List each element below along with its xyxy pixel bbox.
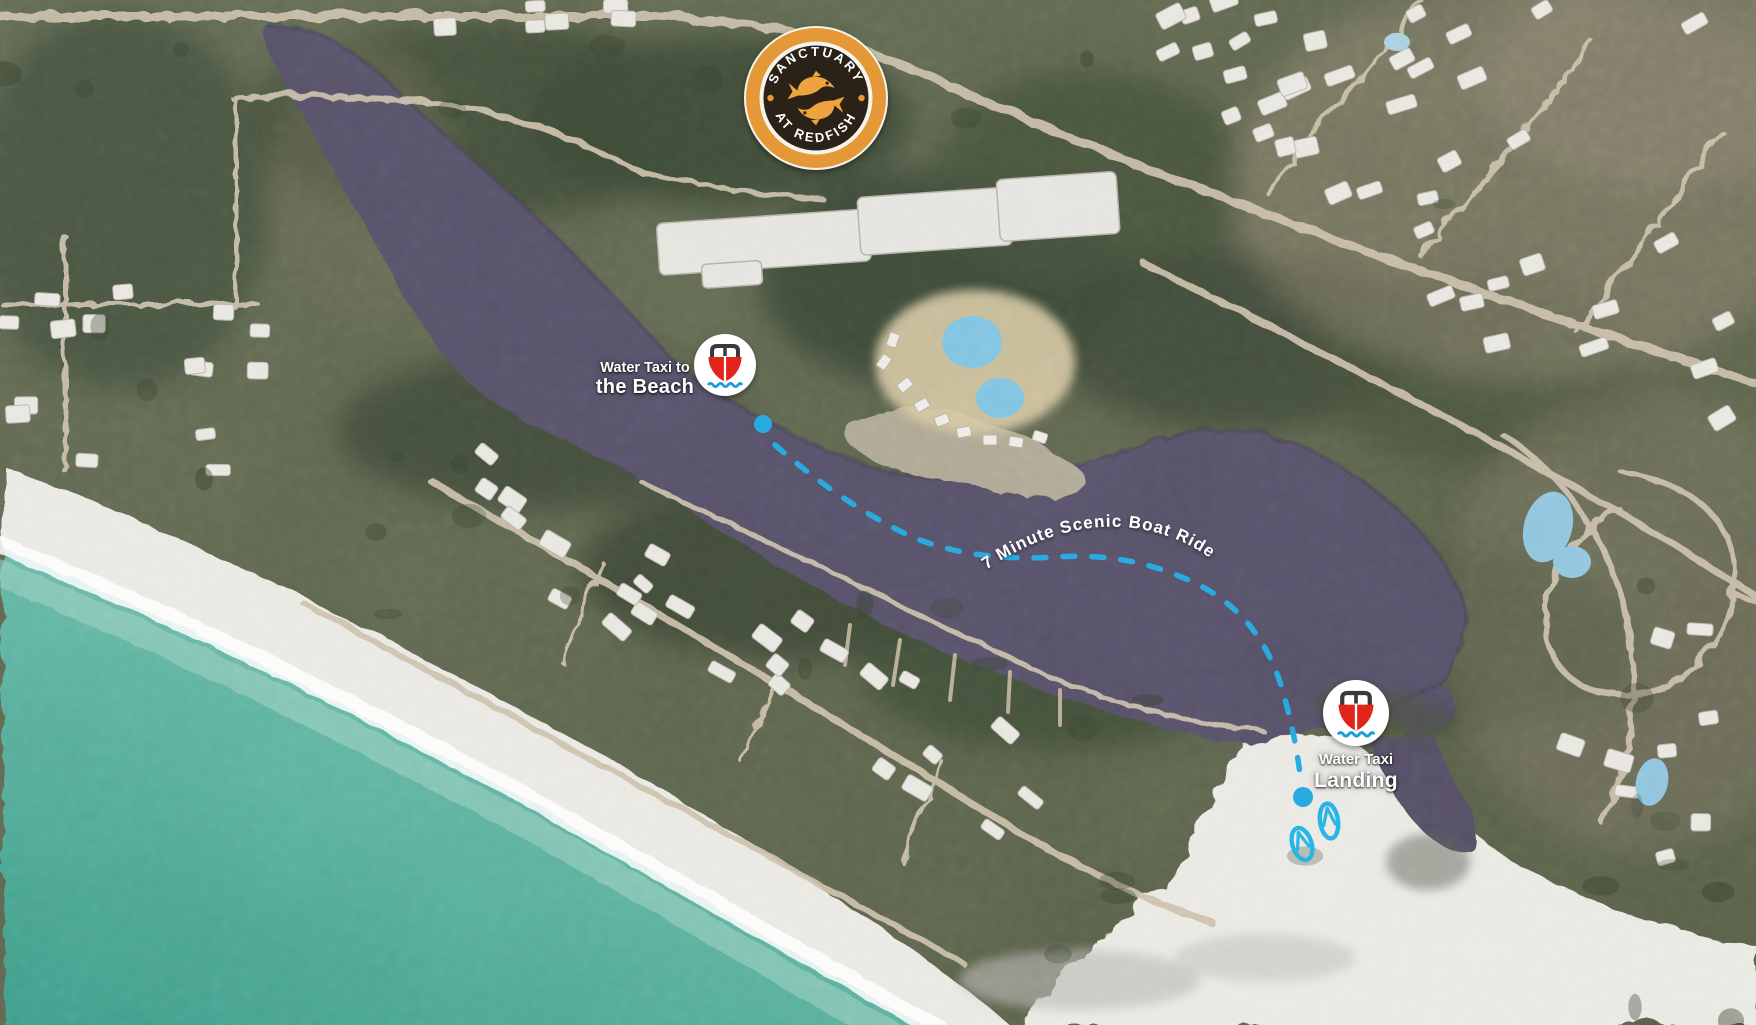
boat-route-dashed-line xyxy=(775,445,1301,782)
sanctuary-logo-badge: SANCTUARY AT REDFISH xyxy=(744,26,888,170)
beach-label-line2: the Beach xyxy=(560,376,730,398)
water-taxi-landing-label: Water Taxi Landing xyxy=(1266,752,1446,792)
route-overlay: 7 Minute Scenic Boat Ride xyxy=(0,0,1756,1025)
marker-water-taxi-landing xyxy=(1323,680,1389,746)
logo-right-dot xyxy=(858,95,864,101)
landing-label-line2: Landing xyxy=(1266,769,1446,793)
map-canvas: 7 Minute Scenic Boat Ride xyxy=(0,0,1756,1025)
water-taxi-beach-label: Water Taxi to the Beach xyxy=(560,360,730,399)
beach-label-line1: Water Taxi to xyxy=(560,360,730,376)
route-start-dot xyxy=(754,415,772,433)
logo-left-dot xyxy=(767,95,773,101)
route-label: 7 Minute Scenic Boat Ride xyxy=(978,512,1219,573)
landing-label-line1: Water Taxi xyxy=(1266,752,1446,769)
flip-flops-icon xyxy=(1288,802,1340,862)
